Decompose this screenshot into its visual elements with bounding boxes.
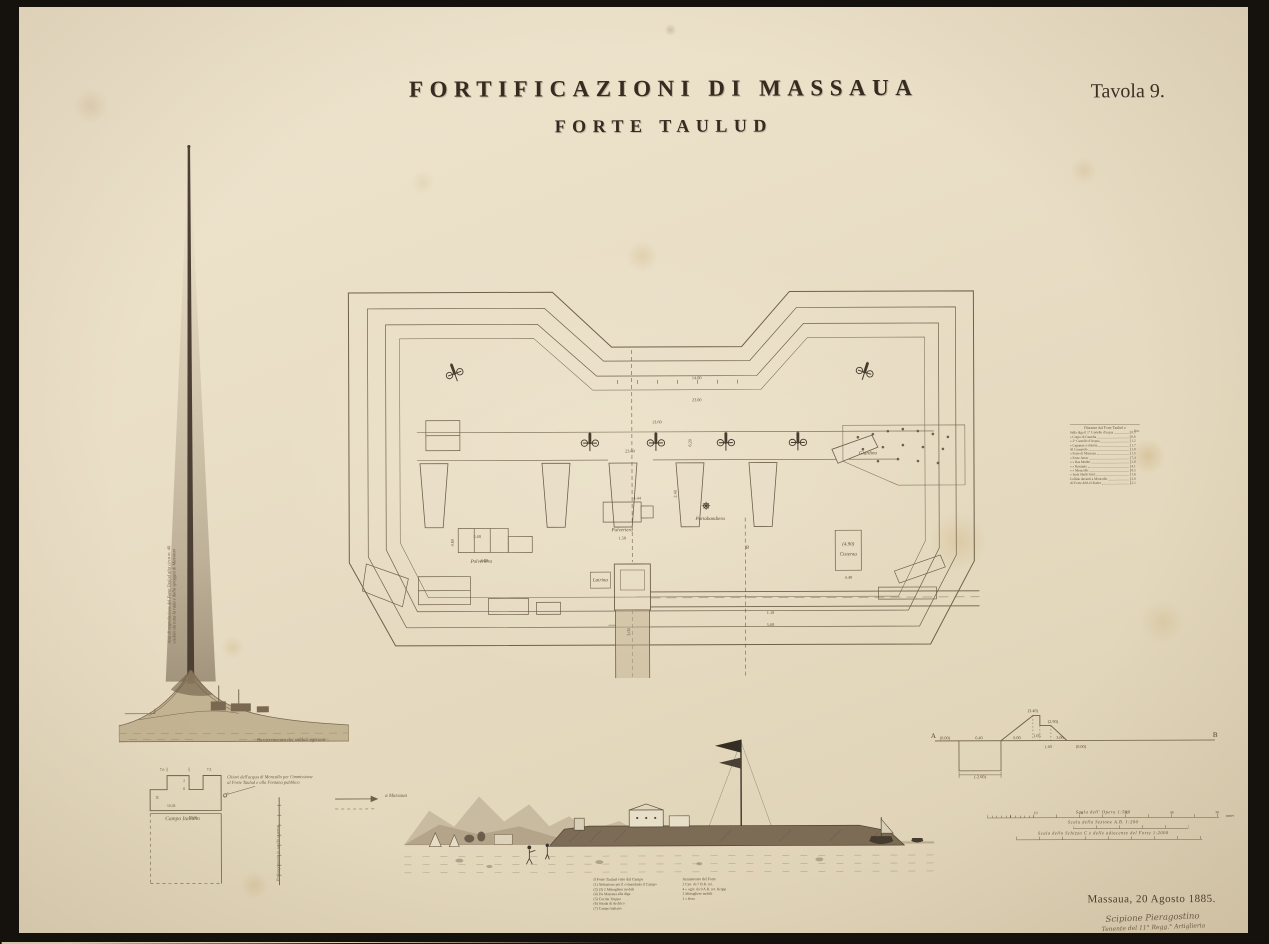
arrow-icon (371, 796, 377, 801)
dotted-leader (1108, 480, 1129, 481)
traverses (420, 435, 878, 528)
photo-frame-bottom (0, 933, 1269, 942)
legend-armament-items: 2 Can. da 7 B.R. ret.4 » ogiv. da 9 A.R.… (682, 882, 757, 901)
scale-bars: Scala dell' Opera 1:500 1020304050 metri… (987, 806, 1219, 843)
photo-frame-left (0, 0, 19, 942)
scale-tick: 20 (1079, 810, 1083, 815)
legend-item: (7) Campo Italiano (594, 906, 679, 911)
distance-label: » » Ras Mudur (1070, 460, 1090, 464)
cannon-icon (647, 432, 664, 451)
distance-label: » » Moncullo (1070, 469, 1088, 473)
legend-item: 1 » fissa (682, 896, 757, 901)
table-row: » » Rotumia 4,1 (1070, 464, 1140, 468)
distance-label: » 2° Castello d'Acqua (1070, 439, 1100, 443)
distance-label: » Forte Jerrar (1070, 456, 1088, 460)
flag-mast (709, 740, 771, 826)
flag-icon (719, 758, 741, 769)
foreground-texture (404, 855, 934, 873)
distance-label: » Capanna a sinistra (1070, 444, 1097, 448)
photo-frame-right (1248, 0, 1269, 942)
table-row: » » Moncullo 8,5 (1070, 468, 1140, 472)
distance-value: 4,1 (1130, 464, 1140, 468)
dotted-leader (1102, 484, 1129, 485)
distance-table-rows: Sulla diga il 1° Castello d'acqua 0,3 » … (1070, 430, 1140, 485)
scale-unit: metri (1226, 813, 1234, 818)
barracks-structures (211, 685, 269, 712)
table-row: » Forte di Massaua 1,5 (1070, 451, 1140, 455)
distance-label: » » Rotumia (1070, 465, 1087, 469)
scale-bar-section (1073, 825, 1188, 829)
legend-armament-column: Armamento del Forte 2 Can. da 7 B.R. ret… (682, 877, 757, 911)
table-row: Al Comando 1,0 (1070, 447, 1140, 451)
flag-icon (715, 740, 741, 753)
signal-mast-figure (117, 141, 349, 772)
table-row: Al Forte Abd-el-Kader 2,1 (1070, 481, 1140, 485)
distance-value: 0,6 (1130, 435, 1140, 439)
scale-tick: 50 (1215, 810, 1219, 815)
scale-bar-opera: 1020304050 metri (987, 814, 1219, 818)
garden (843, 425, 965, 485)
dotted-leader (1097, 438, 1129, 439)
dotted-leader (1097, 454, 1129, 455)
table-row: » Corpo di Guardia 0,6 (1070, 434, 1140, 438)
table-row: Sulla diga il 1° Castello d'acqua 0,3 (1070, 430, 1140, 434)
plate-sheet: FORTIFICAZIONI DI MASSAUA FORTE TAULUD T… (0, 0, 1269, 944)
dotted-leader (1096, 475, 1129, 476)
distance-value: 1,7 (1130, 444, 1140, 448)
legend: Il Forte Taulud visto dal Campo (1) Abit… (593, 877, 768, 922)
photo-frame-top (0, 0, 1269, 7)
fort-embankment (549, 825, 904, 846)
water-keys-note: Chiavi dell'acqua di Moncullo per l'immi… (227, 774, 427, 786)
cannon-icon (854, 359, 876, 382)
fort-plan-drawing (337, 279, 982, 685)
gate-and-bridge (590, 564, 650, 678)
distance-label: Al Forte Abd-el-Kader (1070, 481, 1101, 485)
distance-value: 2,8 (1130, 460, 1140, 464)
distance-value: 1,5 (1130, 452, 1140, 456)
distance-label: » Corpo di Guardia (1070, 435, 1096, 439)
cannon-icon (717, 432, 734, 451)
mast-annotation: Asta di segnalazione del Forte Taulud al… (166, 429, 177, 644)
campo-italiano-label: Campo Italiano (165, 816, 200, 822)
table-row: Colline davanti a Moncullo 2,0 (1070, 476, 1140, 480)
distance-value: 1,2 (1130, 439, 1140, 443)
scale-bar-sketch (1016, 836, 1202, 840)
legend-view-items: (1) Abitazione per il comandante il Camp… (593, 882, 678, 911)
cannons (443, 359, 877, 452)
table-row: » » Ras Mudur 2,8 (1070, 460, 1140, 464)
sandbag-extension-label: Prolungamento in sacchi a terra (275, 796, 280, 881)
redoubt-outline (150, 775, 221, 810)
distance-label: Colline davanti a Moncullo (1070, 477, 1107, 481)
distance-table: Distanze dal Forte Taulud a Km. Sulla di… (1070, 424, 1142, 492)
distance-value: 1,6 (1130, 473, 1140, 477)
fort-panorama-view (399, 725, 940, 879)
distance-table-unit: Km. (1134, 429, 1140, 433)
table-row: » 2° Castello d'Acqua 1,2 (1070, 439, 1140, 443)
distance-value: 7,4 (1130, 456, 1140, 460)
section-profile-drawing (929, 700, 1221, 781)
mast-finial (187, 145, 190, 148)
cannon-icon (581, 432, 598, 451)
distance-label: Al Comando (1070, 448, 1087, 452)
scale-tick: 30 (1125, 810, 1129, 815)
scale-label-section: Scala della Sezione A.B. 1:200 (987, 819, 1219, 825)
scrub-bushes (455, 857, 823, 868)
distance-label: » Forte di Massaua (1070, 452, 1096, 456)
plate-header: FORTIFICAZIONI DI MASSAUA FORTE TAULUD (384, 75, 944, 138)
cannon-icon (789, 431, 806, 450)
water-keys-note-line2: al Forte Taulud e alla Fontana pubblica (227, 779, 427, 785)
distance-table-title: Distanze dal Forte Taulud a (1070, 425, 1140, 430)
plate-title: FORTIFICAZIONI DI MASSAUA (384, 75, 944, 103)
mast-annotation-line2: visibile da tutta la rada e dalla spiagg… (171, 429, 177, 644)
table-row: » Capanna a sinistra 1,7 (1070, 443, 1140, 447)
dotted-leader (1101, 442, 1129, 443)
scale-tick: 40 (1170, 810, 1174, 815)
egyptian-barracks-label: Baraccamento dei soldati egiziani (257, 737, 325, 743)
dotted-leader (1114, 433, 1129, 434)
plate-number: Tavola 9. (1091, 80, 1165, 103)
profile-letter-b: B (1213, 731, 1218, 739)
flagstaff-mark-icon (702, 502, 710, 510)
profile-baseline (935, 740, 1215, 741)
water-key-mark (224, 794, 227, 797)
table-row: » Isola Sheik Said 1,6 (1070, 472, 1140, 476)
scale-tick: 10 (1034, 811, 1038, 816)
figures (526, 844, 549, 864)
table-row: » Forte Jerrar 7,4 (1070, 455, 1140, 459)
ditch-profile (959, 741, 1001, 771)
legend-view-column: Il Forte Taulud visto dal Campo (1) Abit… (593, 877, 678, 911)
plate-subtitle: FORTE TAULUD (384, 115, 944, 138)
distance-label: » Isola Sheik Said (1070, 473, 1095, 477)
dotted-leader (1098, 446, 1129, 447)
scale-label-sketch: Scala dello Schizzo C e delle adiacenze … (987, 830, 1219, 836)
scale-tick-numbers: 1020304050 (1034, 810, 1220, 815)
distance-value: 2,1 (1130, 481, 1140, 485)
distance-value: 8,5 (1130, 469, 1140, 473)
rampart-profile (1001, 715, 1067, 740)
distance-value: 2,0 (1130, 477, 1140, 481)
profile-letter-a: A (931, 732, 936, 740)
distance-label: Sulla diga il 1° Castello d'acqua (1070, 431, 1113, 435)
distance-value: 1,0 (1130, 448, 1140, 452)
cannon-icon (443, 360, 466, 384)
place-date: Massaua, 20 Agosto 1885. (1087, 893, 1215, 905)
